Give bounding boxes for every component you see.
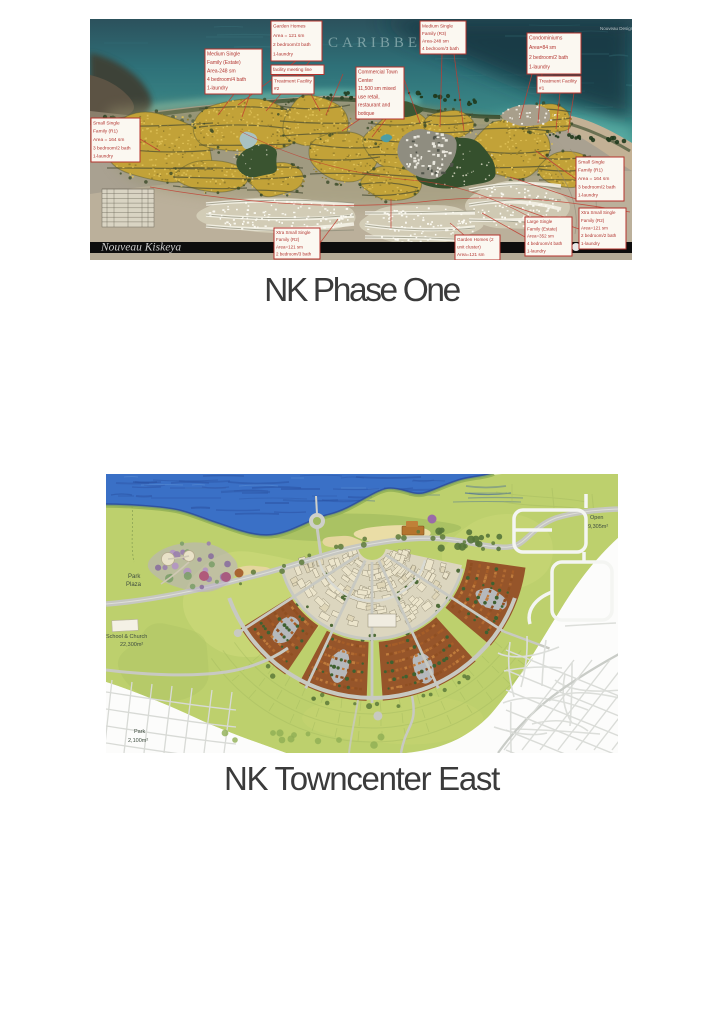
svg-text:Area=121 sm: Area=121 sm <box>581 226 608 231</box>
svg-text:Treatment Facility: Treatment Facility <box>539 78 578 84</box>
svg-text:Xtra Small Single: Xtra Small Single <box>581 210 616 215</box>
svg-text:11,500 sm mixed: 11,500 sm mixed <box>358 86 396 92</box>
svg-text:1-laundry: 1-laundry <box>93 154 114 160</box>
svg-text:Family (R3): Family (R3) <box>422 31 447 36</box>
svg-text:botique: botique <box>358 111 375 117</box>
svg-text:1-laundry: 1-laundry <box>527 248 547 253</box>
svg-text:Area-248 sm: Area-248 sm <box>207 69 236 75</box>
svg-text:Family (R1): Family (R1) <box>578 168 603 174</box>
svg-text:Small Single: Small Single <box>93 120 120 126</box>
svg-text:Plaza: Plaza <box>126 582 142 588</box>
svg-text:2 bedroom/2 bath: 2 bedroom/2 bath <box>581 233 617 238</box>
svg-text:Open: Open <box>590 515 603 521</box>
svg-text:Family (R2): Family (R2) <box>276 237 300 242</box>
svg-text:1-laundry: 1-laundry <box>207 86 228 92</box>
svg-text:Condominiums: Condominiums <box>529 36 563 42</box>
svg-text:Area = 164 sm: Area = 164 sm <box>578 176 609 182</box>
svg-text:Large Single: Large Single <box>527 219 553 224</box>
svg-text:2 bedroom/2 bath: 2 bedroom/2 bath <box>529 55 568 61</box>
svg-text:1-laundry: 1-laundry <box>578 193 599 199</box>
svg-text:2 bedroom/3 bath: 2 bedroom/3 bath <box>273 42 311 48</box>
svg-text:Area = 121 sm: Area = 121 sm <box>273 33 304 39</box>
svg-text:22,300m²: 22,300m² <box>120 642 143 648</box>
svg-text:Medium Single: Medium Single <box>422 23 453 28</box>
svg-text:Treatment Facility: Treatment Facility <box>274 78 313 84</box>
svg-text:1-laundry: 1-laundry <box>581 241 601 246</box>
svg-text:unit cluster): unit cluster) <box>457 245 481 250</box>
svg-text:2 bedroom/3 bath: 2 bedroom/3 bath <box>276 252 312 257</box>
svg-text:use retail,: use retail, <box>358 94 380 100</box>
svg-text:Area = 164 sm: Area = 164 sm <box>93 137 124 143</box>
svg-text:Garden Homes (2: Garden Homes (2 <box>457 237 494 242</box>
svg-text:4 bedroom/4 bath: 4 bedroom/4 bath <box>527 241 563 246</box>
svg-text:restaurant and: restaurant and <box>358 103 390 109</box>
svg-text:Park: Park <box>134 729 146 735</box>
svg-text:4 bedroom/3 bath: 4 bedroom/3 bath <box>422 46 459 51</box>
svg-text:Family (R1): Family (R1) <box>93 129 118 135</box>
svg-text:Nouveau Design: Nouveau Design <box>600 26 632 31</box>
svg-text:Park: Park <box>128 574 141 580</box>
svg-text:Family (R2): Family (R2) <box>581 218 605 223</box>
svg-text:Commercial Town: Commercial Town <box>358 70 398 76</box>
svg-text:Nouveau Kiskeya: Nouveau Kiskeya <box>100 242 181 254</box>
svg-text:4 bedroom/4 bath: 4 bedroom/4 bath <box>207 77 246 83</box>
svg-text:Family (Estate): Family (Estate) <box>527 226 558 231</box>
svg-text:Area=84 sm: Area=84 sm <box>529 45 556 51</box>
svg-text:#1: #1 <box>539 86 545 92</box>
svg-text:Family (Estate): Family (Estate) <box>207 60 241 66</box>
svg-text:Area=352 sm: Area=352 sm <box>527 234 554 239</box>
svg-text:Area-248 sm: Area-248 sm <box>422 39 449 44</box>
svg-text:Small Single: Small Single <box>578 159 605 165</box>
svg-text:Medium Single: Medium Single <box>207 52 240 58</box>
svg-text:9,305m²: 9,305m² <box>588 524 608 530</box>
svg-text:Area=121 sm: Area=121 sm <box>276 244 303 249</box>
svg-text:2,100m²: 2,100m² <box>128 738 148 744</box>
svg-text:3 bedroom/2 bath: 3 bedroom/2 bath <box>578 184 616 190</box>
svg-text:Area=121 sm: Area=121 sm <box>457 252 485 257</box>
svg-text:Center: Center <box>358 78 373 84</box>
svg-text:School & Church: School & Church <box>106 634 147 640</box>
svg-text:1-laundry: 1-laundry <box>529 65 550 71</box>
svg-text:3 bedroom/2 bath: 3 bedroom/2 bath <box>93 145 131 151</box>
svg-text:Xtra Small Single: Xtra Small Single <box>276 230 311 235</box>
svg-text:#2: #2 <box>274 86 280 92</box>
svg-text:1-laundry: 1-laundry <box>273 52 294 58</box>
svg-text:facility meeting line: facility meeting line <box>273 67 312 72</box>
svg-text:Garden Homes: Garden Homes <box>273 23 306 29</box>
